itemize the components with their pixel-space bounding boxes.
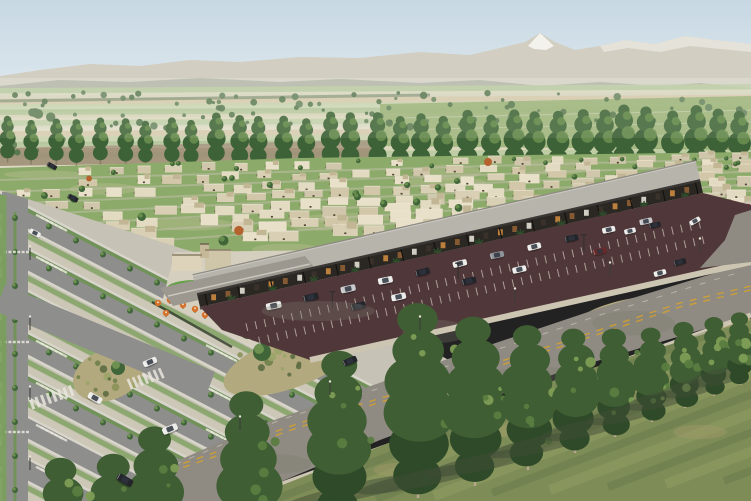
clubhouse-tower bbox=[200, 244, 209, 258]
clubhouse bbox=[172, 255, 202, 271]
scene-svg bbox=[0, 0, 751, 501]
haze-overlay bbox=[0, 78, 751, 138]
aerial-rendering bbox=[0, 0, 751, 501]
